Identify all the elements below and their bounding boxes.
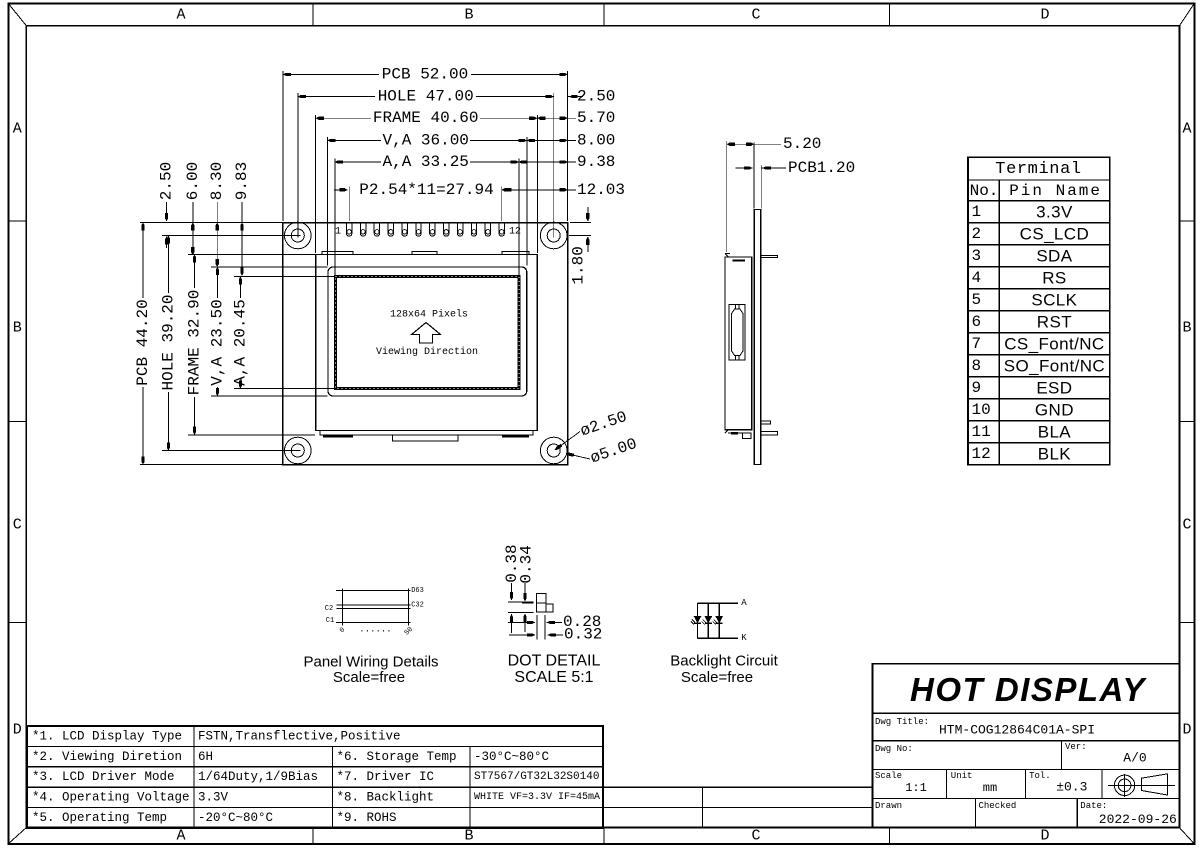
svg-text:B: B [464,7,473,24]
svg-text:CS_Font/NC: CS_Font/NC [1004,334,1104,353]
svg-text:Scale=free: Scale=free [333,669,405,686]
svg-text:Date:: Date: [1080,801,1107,811]
svg-text:*8. Backlight: *8. Backlight [337,791,435,805]
svg-text:D63: D63 [411,587,424,595]
svg-text:HOLE 47.00: HOLE 47.00 [378,88,474,106]
svg-text:DOT DETAIL: DOT DETAIL [508,653,601,670]
svg-text:8: 8 [972,357,982,375]
svg-text:C: C [751,7,760,24]
svg-text:Panel Wiring Details: Panel Wiring Details [303,654,438,671]
svg-text:1/64Duty,1/9Bias: 1/64Duty,1/9Bias [198,770,318,784]
svg-text:Terminal: Terminal [995,160,1081,179]
svg-text:SO_Font/NC: SO_Font/NC [1004,356,1105,375]
svg-text:PCB1.20: PCB1.20 [788,159,855,177]
svg-text:3.3V: 3.3V [1036,202,1073,221]
svg-text:3: 3 [972,247,982,265]
svg-text:7: 7 [972,335,982,353]
svg-text:B: B [1182,320,1191,337]
svg-text:0.34: 0.34 [518,545,536,583]
svg-text:D: D [13,722,22,739]
svg-text:C2: C2 [325,605,333,613]
svg-text:Ver:: Ver: [1065,742,1087,752]
svg-text:PCB 52.00: PCB 52.00 [382,65,468,83]
svg-text:±0.3: ±0.3 [1056,780,1087,795]
svg-text:2.50: 2.50 [158,162,176,200]
svg-text:1: 1 [972,203,982,221]
svg-text:Scale=free: Scale=free [681,669,753,686]
svg-text:FSTN,Transflective,Positive: FSTN,Transflective,Positive [198,729,401,743]
svg-text:9.83: 9.83 [233,162,251,200]
svg-text:A: A [176,7,185,24]
svg-text:5: 5 [972,291,982,309]
svg-text:6H: 6H [198,750,213,764]
svg-text:ST7567/GT32L32S0140: ST7567/GT32L32S0140 [474,771,599,783]
svg-text:3.3V: 3.3V [198,791,229,805]
svg-text:Tol.: Tol. [1029,771,1051,781]
svg-text:9: 9 [972,379,982,397]
svg-text:Scale: Scale [875,771,902,781]
svg-text:A,A 20.45: A,A 20.45 [231,299,249,385]
svg-text:2: 2 [972,225,982,243]
svg-text:K: K [741,633,747,643]
svg-text:Drawn: Drawn [875,801,902,811]
svg-text:V,A 36.00: V,A 36.00 [382,131,468,149]
svg-text:C1: C1 [326,617,334,625]
svg-text:C: C [13,517,22,534]
svg-text:BLK: BLK [1038,444,1072,463]
svg-text:Pin Name: Pin Name [1009,182,1102,200]
svg-text:A,A 33.25: A,A 33.25 [382,153,468,171]
svg-text:-20°C~80°C: -20°C~80°C [198,811,273,825]
svg-text:Dwg No:: Dwg No: [875,744,913,754]
svg-text:*5. Operating Temp: *5. Operating Temp [32,811,167,825]
svg-text:RS: RS [1042,268,1066,287]
svg-text:Backlight Circuit: Backlight Circuit [670,653,778,670]
svg-text:*9. ROHS: *9. ROHS [337,811,397,825]
svg-text:HTM-COG12864C01A-SPI: HTM-COG12864C01A-SPI [939,723,1095,738]
svg-text:11: 11 [972,423,991,441]
svg-text:FRAME 32.90: FRAME 32.90 [186,290,204,396]
svg-text:WHITE VF=3.3V IF=45mA: WHITE VF=3.3V IF=45mA [474,792,600,803]
svg-text:V,A 23.50: V,A 23.50 [208,299,226,385]
svg-text:CS_LCD: CS_LCD [1020,224,1089,243]
svg-text:HOT DISPLAY: HOT DISPLAY [910,671,1147,708]
svg-text:RST: RST [1037,312,1072,331]
svg-text:0.32: 0.32 [564,626,602,644]
svg-text:10: 10 [972,401,991,419]
svg-text:*2. Viewing Diretion: *2. Viewing Diretion [32,750,182,764]
svg-text:BLA: BLA [1038,422,1072,441]
svg-text:*7. Driver IC: *7. Driver IC [337,770,435,784]
svg-text:GND: GND [1035,400,1074,419]
svg-text:FRAME 40.60: FRAME 40.60 [373,109,479,127]
svg-text:-30°C~80°C: -30°C~80°C [474,750,549,764]
svg-text:128x64 Pixels: 128x64 Pixels [390,309,468,321]
svg-text:C: C [751,828,760,845]
svg-text:*4. Operating Voltage: *4. Operating Voltage [32,791,190,805]
svg-text:A: A [13,121,22,138]
svg-text:6.00: 6.00 [184,162,202,200]
svg-text:B: B [464,828,473,845]
svg-text:Unit: Unit [951,771,973,781]
svg-text:*3. LCD Driver Mode: *3. LCD Driver Mode [32,770,175,784]
svg-text:1.80: 1.80 [569,246,587,284]
svg-text:*6. Storage Temp: *6. Storage Temp [337,750,457,764]
svg-text:B: B [13,320,22,337]
svg-text:4: 4 [972,269,982,287]
svg-text:mm: mm [983,781,997,795]
svg-text:SCALE 5:1: SCALE 5:1 [514,669,593,686]
svg-text:2022-09-26: 2022-09-26 [1099,812,1177,827]
svg-text:5.70: 5.70 [577,109,615,127]
svg-text:Checked: Checked [979,801,1017,811]
svg-text:SCLK: SCLK [1031,290,1077,309]
svg-text:A: A [741,598,747,608]
svg-text:8.00: 8.00 [577,131,615,149]
svg-text:6: 6 [972,313,982,331]
svg-text:Viewing Direction: Viewing Direction [376,346,478,358]
svg-text:1: 1 [335,227,341,238]
svg-text:A/0: A/0 [1123,751,1146,766]
svg-text:8.30: 8.30 [208,162,226,200]
svg-text:P2.54*11=27.94: P2.54*11=27.94 [359,181,493,199]
svg-text:9.38: 9.38 [577,153,615,171]
svg-text:C32: C32 [411,601,424,609]
svg-text:1:1: 1:1 [905,781,927,795]
svg-text:*1. LCD Display Type: *1. LCD Display Type [32,729,182,743]
svg-text:......: ...... [359,625,391,635]
svg-text:12: 12 [972,445,991,463]
svg-text:D: D [1182,722,1191,739]
svg-text:A: A [1182,121,1191,138]
svg-text:No.: No. [970,182,999,200]
svg-text:SDA: SDA [1036,246,1072,265]
svg-text:A: A [176,828,185,845]
svg-text:PCB 44.20: PCB 44.20 [134,299,152,385]
svg-text:5.20: 5.20 [783,135,821,153]
svg-text:Dwg Title:: Dwg Title: [875,717,929,727]
svg-text:2.50: 2.50 [577,88,615,106]
svg-text:HOLE 39.20: HOLE 39.20 [159,294,177,390]
svg-text:ESD: ESD [1036,378,1072,397]
svg-text:12.03: 12.03 [577,181,625,199]
svg-text:D: D [1040,7,1049,24]
svg-text:C: C [1182,517,1191,534]
svg-text:D: D [1040,828,1049,845]
